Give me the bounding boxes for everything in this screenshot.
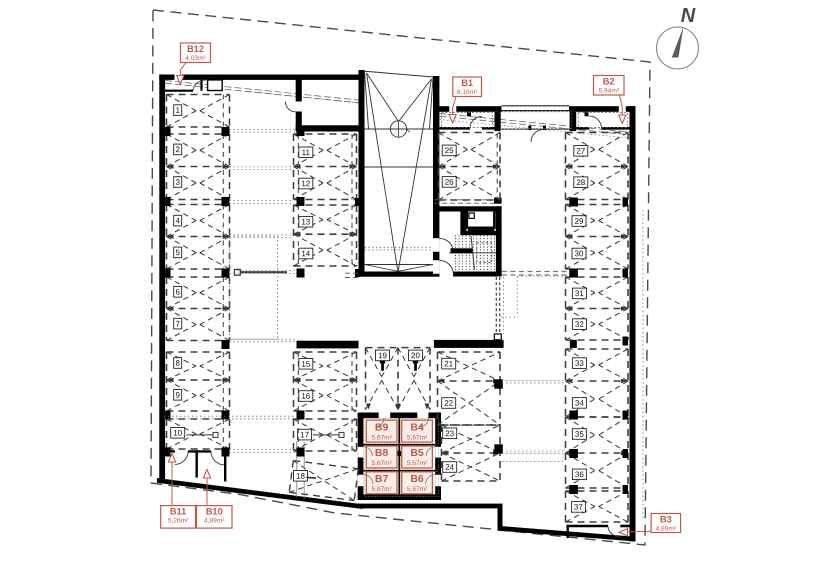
svg-text:5,67m²: 5,67m² bbox=[372, 460, 393, 467]
svg-text:B7: B7 bbox=[375, 473, 389, 485]
svg-text:18: 18 bbox=[296, 472, 305, 481]
svg-text:32: 32 bbox=[575, 320, 584, 329]
svg-text:23: 23 bbox=[445, 429, 454, 438]
svg-text:B10: B10 bbox=[206, 507, 223, 517]
svg-text:17: 17 bbox=[300, 430, 309, 439]
svg-text:4: 4 bbox=[175, 216, 180, 225]
svg-text:14: 14 bbox=[301, 249, 310, 258]
svg-text:5,67m²: 5,67m² bbox=[407, 486, 428, 493]
svg-text:28: 28 bbox=[576, 178, 585, 187]
svg-text:2: 2 bbox=[175, 145, 180, 154]
svg-text:25: 25 bbox=[445, 146, 454, 155]
svg-text:31: 31 bbox=[575, 289, 584, 298]
svg-text:37: 37 bbox=[574, 503, 583, 512]
svg-text:4,89m²: 4,89m² bbox=[656, 525, 677, 532]
svg-text:9: 9 bbox=[175, 391, 180, 400]
svg-text:13: 13 bbox=[301, 217, 310, 226]
svg-text:B8: B8 bbox=[375, 447, 389, 459]
svg-text:B5: B5 bbox=[410, 447, 424, 459]
svg-text:B12: B12 bbox=[187, 44, 204, 54]
svg-text:15: 15 bbox=[301, 360, 310, 369]
svg-text:B4: B4 bbox=[410, 421, 424, 433]
svg-text:3: 3 bbox=[175, 178, 180, 187]
svg-text:B3: B3 bbox=[660, 515, 672, 525]
svg-text:11: 11 bbox=[302, 148, 311, 157]
svg-text:B11: B11 bbox=[170, 507, 187, 517]
svg-text:27: 27 bbox=[576, 147, 585, 156]
svg-text:21: 21 bbox=[444, 359, 453, 368]
svg-text:10: 10 bbox=[173, 429, 182, 438]
svg-text:19: 19 bbox=[378, 351, 387, 360]
svg-text:5,67m²: 5,67m² bbox=[407, 460, 428, 467]
svg-text:24: 24 bbox=[445, 463, 454, 472]
svg-text:5,67m²: 5,67m² bbox=[407, 434, 428, 441]
svg-text:5,94m²: 5,94m² bbox=[598, 87, 619, 94]
svg-text:4,03m²: 4,03m² bbox=[185, 55, 206, 62]
svg-text:29: 29 bbox=[575, 217, 584, 226]
svg-text:20: 20 bbox=[411, 351, 420, 360]
svg-text:B9: B9 bbox=[375, 421, 389, 433]
svg-text:5,67m²: 5,67m² bbox=[372, 486, 393, 493]
svg-text:5: 5 bbox=[175, 248, 180, 257]
svg-text:6,16m²: 6,16m² bbox=[457, 89, 478, 96]
svg-text:8: 8 bbox=[175, 359, 180, 368]
svg-text:22: 22 bbox=[444, 399, 453, 408]
svg-text:6: 6 bbox=[175, 288, 180, 297]
svg-text:B2: B2 bbox=[603, 77, 615, 87]
svg-text:33: 33 bbox=[575, 359, 584, 368]
svg-text:36: 36 bbox=[575, 470, 584, 479]
svg-text:7: 7 bbox=[175, 319, 180, 328]
svg-text:30: 30 bbox=[575, 249, 584, 258]
svg-text:B6: B6 bbox=[410, 473, 424, 485]
svg-text:1: 1 bbox=[175, 106, 180, 115]
svg-text:34: 34 bbox=[575, 399, 584, 408]
svg-text:5,26m²: 5,26m² bbox=[168, 517, 189, 524]
svg-text:26: 26 bbox=[445, 178, 454, 187]
svg-text:16: 16 bbox=[301, 392, 310, 401]
svg-text:N: N bbox=[681, 5, 696, 27]
svg-text:35: 35 bbox=[575, 430, 584, 439]
svg-text:B1: B1 bbox=[461, 78, 473, 88]
svg-text:4,89m²: 4,89m² bbox=[204, 517, 225, 524]
svg-text:12: 12 bbox=[301, 179, 310, 188]
svg-text:5,67m²: 5,67m² bbox=[372, 434, 393, 441]
